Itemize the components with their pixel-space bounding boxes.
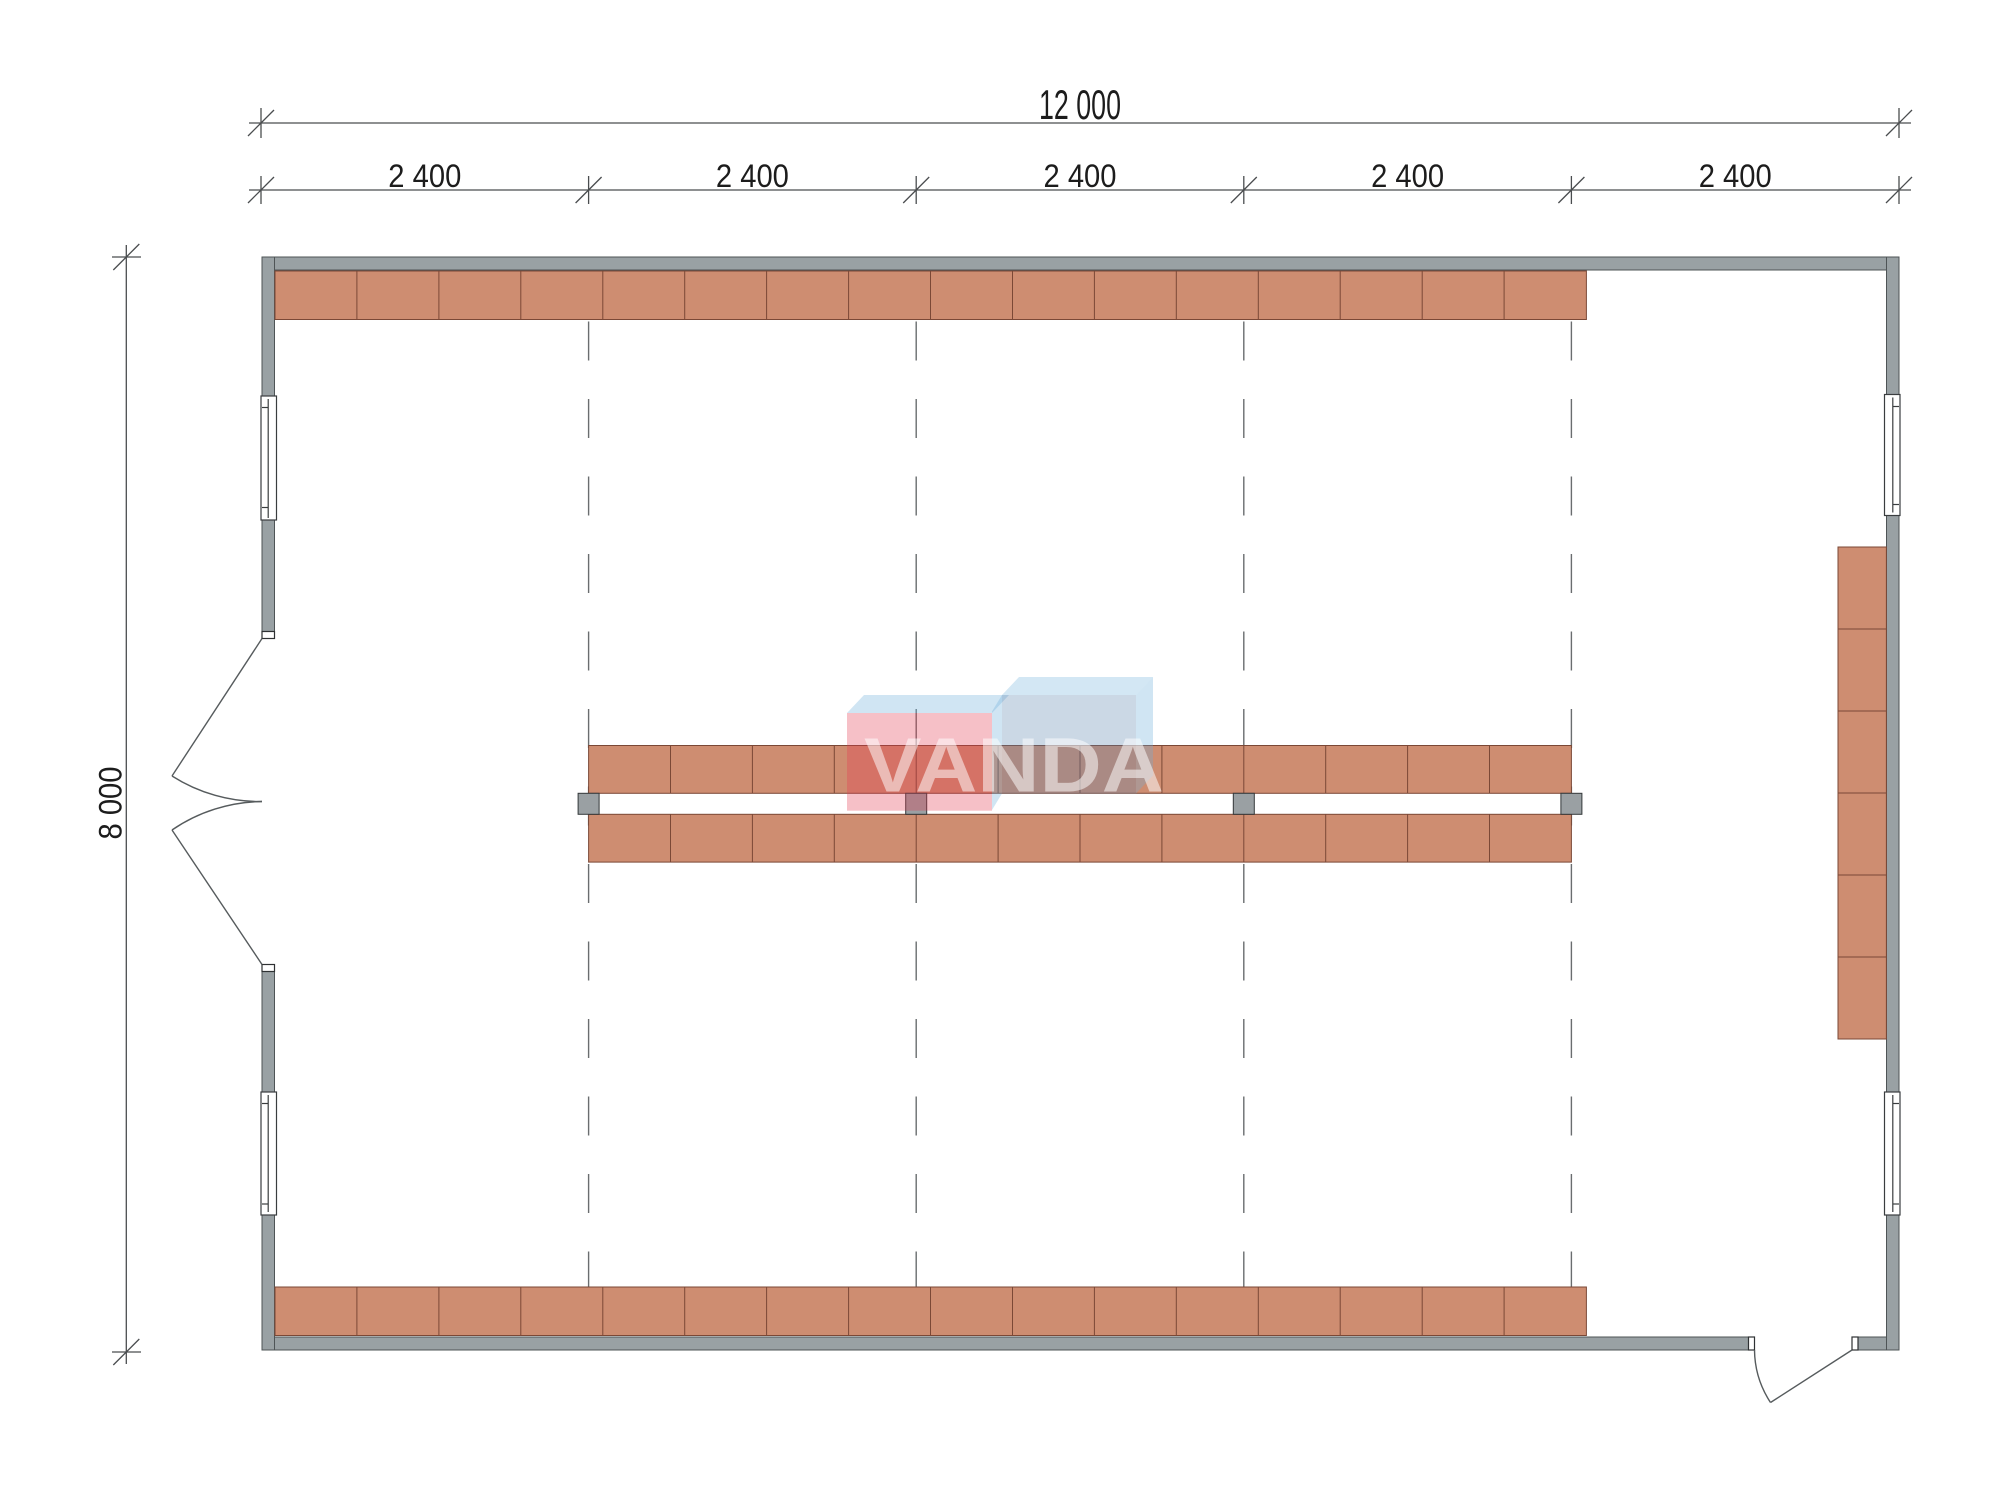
svg-text:8 000: 8 000: [93, 767, 129, 840]
svg-text:2 400: 2 400: [1044, 158, 1117, 194]
svg-text:12 000: 12 000: [1039, 81, 1121, 128]
svg-text:2 400: 2 400: [388, 158, 461, 194]
svg-text:2 400: 2 400: [716, 158, 789, 194]
svg-text:2 400: 2 400: [1699, 158, 1772, 194]
svg-text:VANDA: VANDA: [864, 723, 1164, 809]
svg-text:2 400: 2 400: [1371, 158, 1444, 194]
